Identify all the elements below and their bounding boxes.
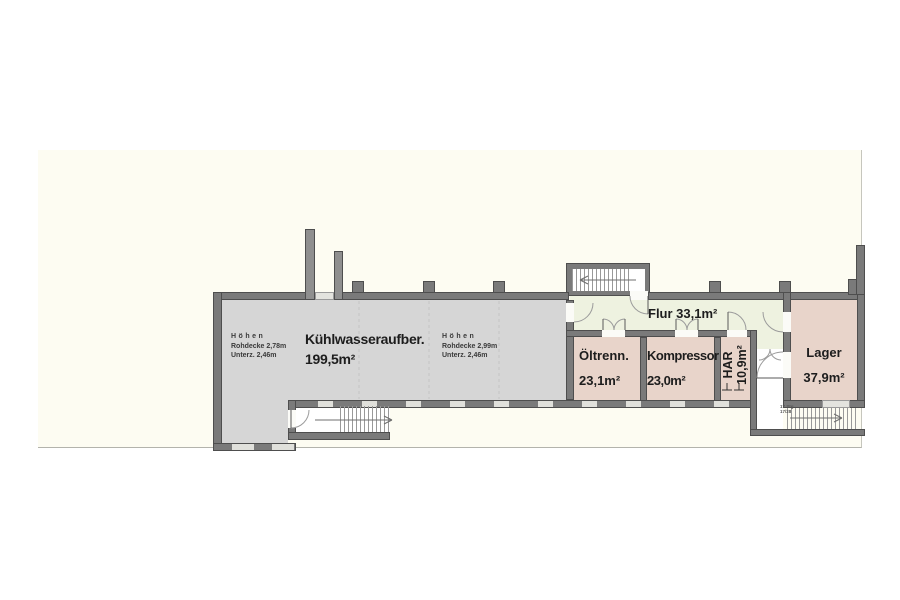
- wall-stub-short: [334, 251, 343, 300]
- pillar: [709, 281, 721, 293]
- room-name: Kompressor: [647, 343, 719, 368]
- wall-oeltrenn-kompressor: [640, 337, 647, 401]
- hoehen-note-right: Höhen Rohdecke 2,99m Unterz. 2,46m: [442, 332, 497, 360]
- stairs-bottom-right: [787, 408, 856, 429]
- room-area: 199,5m²: [305, 349, 424, 369]
- room-label-kompressor: Kompressor 23,0m²: [647, 343, 719, 393]
- wall-bottom-outer-right: [750, 429, 865, 436]
- room-label-flur: Flur 33,1m²: [648, 305, 717, 323]
- hoehen-rohdecke: Rohdecke 2,99m: [442, 342, 497, 351]
- wall-bottom-left-windows: [213, 443, 296, 451]
- hoehen-unterzug: Unterz. 2,46m: [231, 351, 286, 360]
- hoehen-rohdecke: Rohdecke 2,78m: [231, 342, 286, 351]
- hoehen-title: Höhen: [231, 332, 286, 341]
- room-area: 23,0m²: [647, 368, 719, 393]
- room-label-lager: Lager 37,9m²: [791, 340, 857, 390]
- door-opening-flur-gray: [566, 303, 574, 322]
- wall-stub-tall: [305, 229, 315, 300]
- room-area: 10,9m²: [735, 335, 749, 395]
- door-opening-kompressor: [675, 330, 698, 337]
- room-name: Kühlwasseraufber.: [305, 329, 424, 349]
- wall-top-right: [648, 292, 865, 300]
- hoehen-note-left: Höhen Rohdecke 2,78m Unterz. 2,46m: [231, 332, 286, 360]
- wall-har-corridor: [750, 330, 757, 436]
- room-name: Lager: [791, 340, 857, 365]
- hoehen-title: Höhen: [442, 332, 497, 341]
- door-opening-stair-flur: [630, 291, 648, 300]
- stairs-bottom-center: [340, 406, 390, 432]
- pillar: [352, 281, 364, 293]
- hoehen-unterzug: Unterz. 2,46m: [442, 351, 497, 360]
- wall-stub-corner: [856, 245, 865, 295]
- stair-note: 17 Stg 17/28: [780, 405, 794, 414]
- wall-stair-bottom: [288, 432, 390, 440]
- pillar: [423, 281, 435, 293]
- pillar: [779, 281, 791, 293]
- stair-note-line2: 17/28: [780, 410, 794, 415]
- room-area: 23,1m²: [579, 368, 629, 393]
- floorplan-canvas: Kühlwasseraufber. 199,5m² Höhen Rohdecke…: [0, 0, 900, 600]
- room-label-kuehlwasser: Kühlwasseraufber. 199,5m²: [305, 329, 424, 369]
- wall-lager-left: [783, 292, 791, 408]
- wall-left: [213, 292, 222, 451]
- room-name: Öltrenn.: [579, 343, 629, 368]
- door-opening-lager-lower: [783, 352, 791, 378]
- wall-top-main: [213, 292, 569, 300]
- room-name: HAR: [721, 335, 735, 395]
- room-flur-corridor: [757, 296, 783, 349]
- pillar: [493, 281, 505, 293]
- stairs-top: [572, 269, 630, 291]
- door-opening-stair: [288, 410, 296, 428]
- door-opening-lager-upper: [783, 312, 791, 332]
- vestibule: [757, 349, 783, 429]
- window-top: [315, 292, 334, 300]
- room-kuehlwasser-lower: [222, 398, 288, 444]
- wall-lager-right: [857, 292, 865, 408]
- window-lager: [822, 400, 850, 408]
- room-area: 37,9m²: [791, 365, 857, 390]
- room-label-har: HAR 10,9m²: [721, 335, 749, 395]
- pillar-corner: [848, 279, 857, 295]
- room-label-oeltrenn: Öltrenn. 23,1m²: [579, 343, 629, 393]
- door-opening-oeltrenn: [602, 330, 625, 337]
